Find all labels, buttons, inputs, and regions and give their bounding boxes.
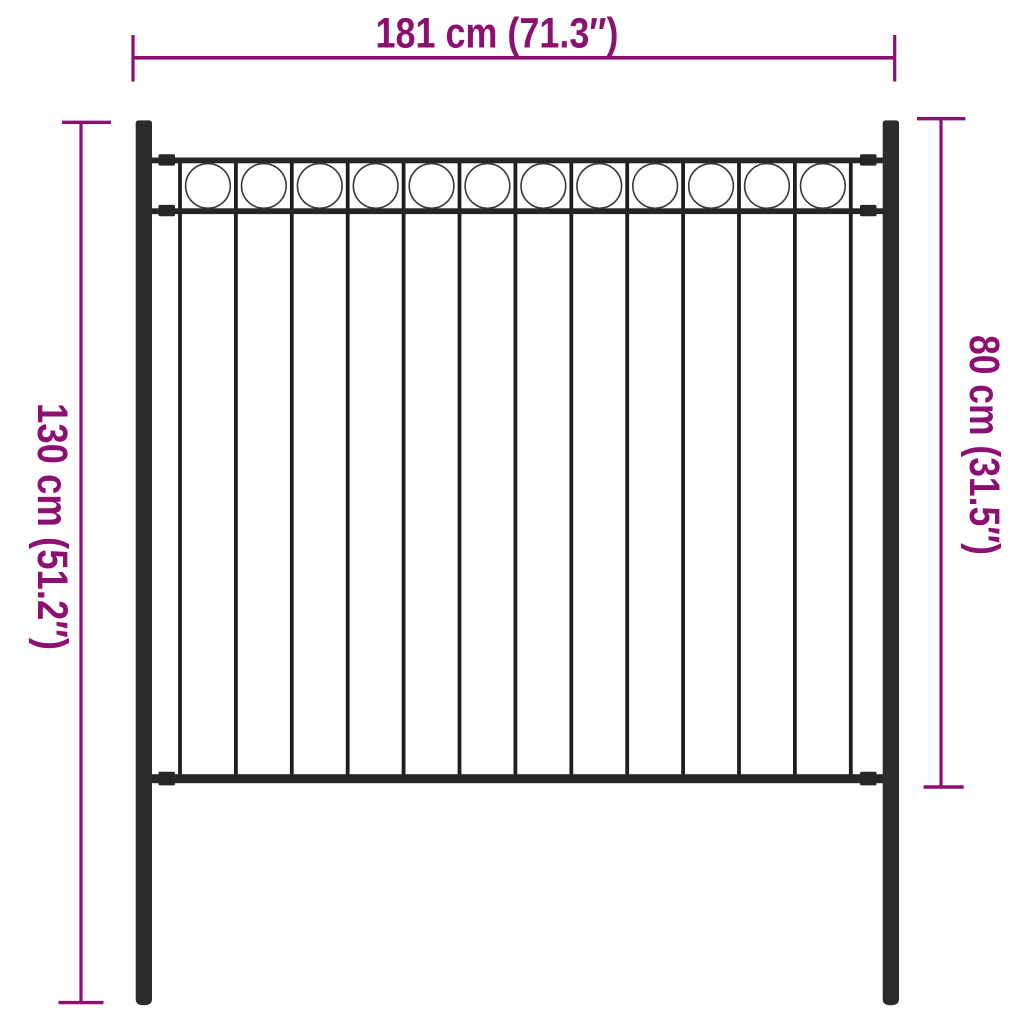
- svg-text:181 cm (71.3″): 181 cm (71.3″): [376, 10, 619, 57]
- svg-text:80 cm (31.5″): 80 cm (31.5″): [960, 335, 1007, 555]
- svg-text:130 cm (51.2″): 130 cm (51.2″): [28, 403, 75, 650]
